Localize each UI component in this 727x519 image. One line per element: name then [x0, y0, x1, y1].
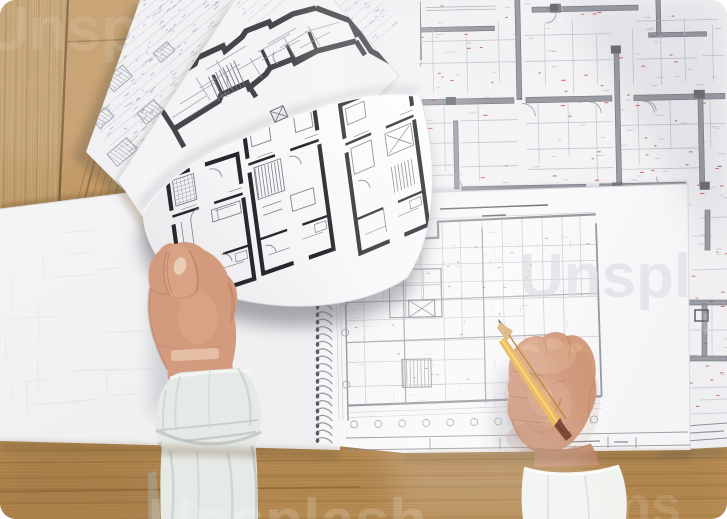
svg-text:+: + [694, 300, 719, 347]
svg-text:Unsplash: Unsplash [148, 487, 427, 519]
svg-text:+: + [0, 230, 25, 277]
svg-text:Unspl: Unspl [519, 242, 691, 311]
svg-text:ns: ns [618, 476, 681, 519]
svg-text:+: + [548, 0, 573, 37]
svg-text:Unspl: Unspl [0, 0, 156, 64]
